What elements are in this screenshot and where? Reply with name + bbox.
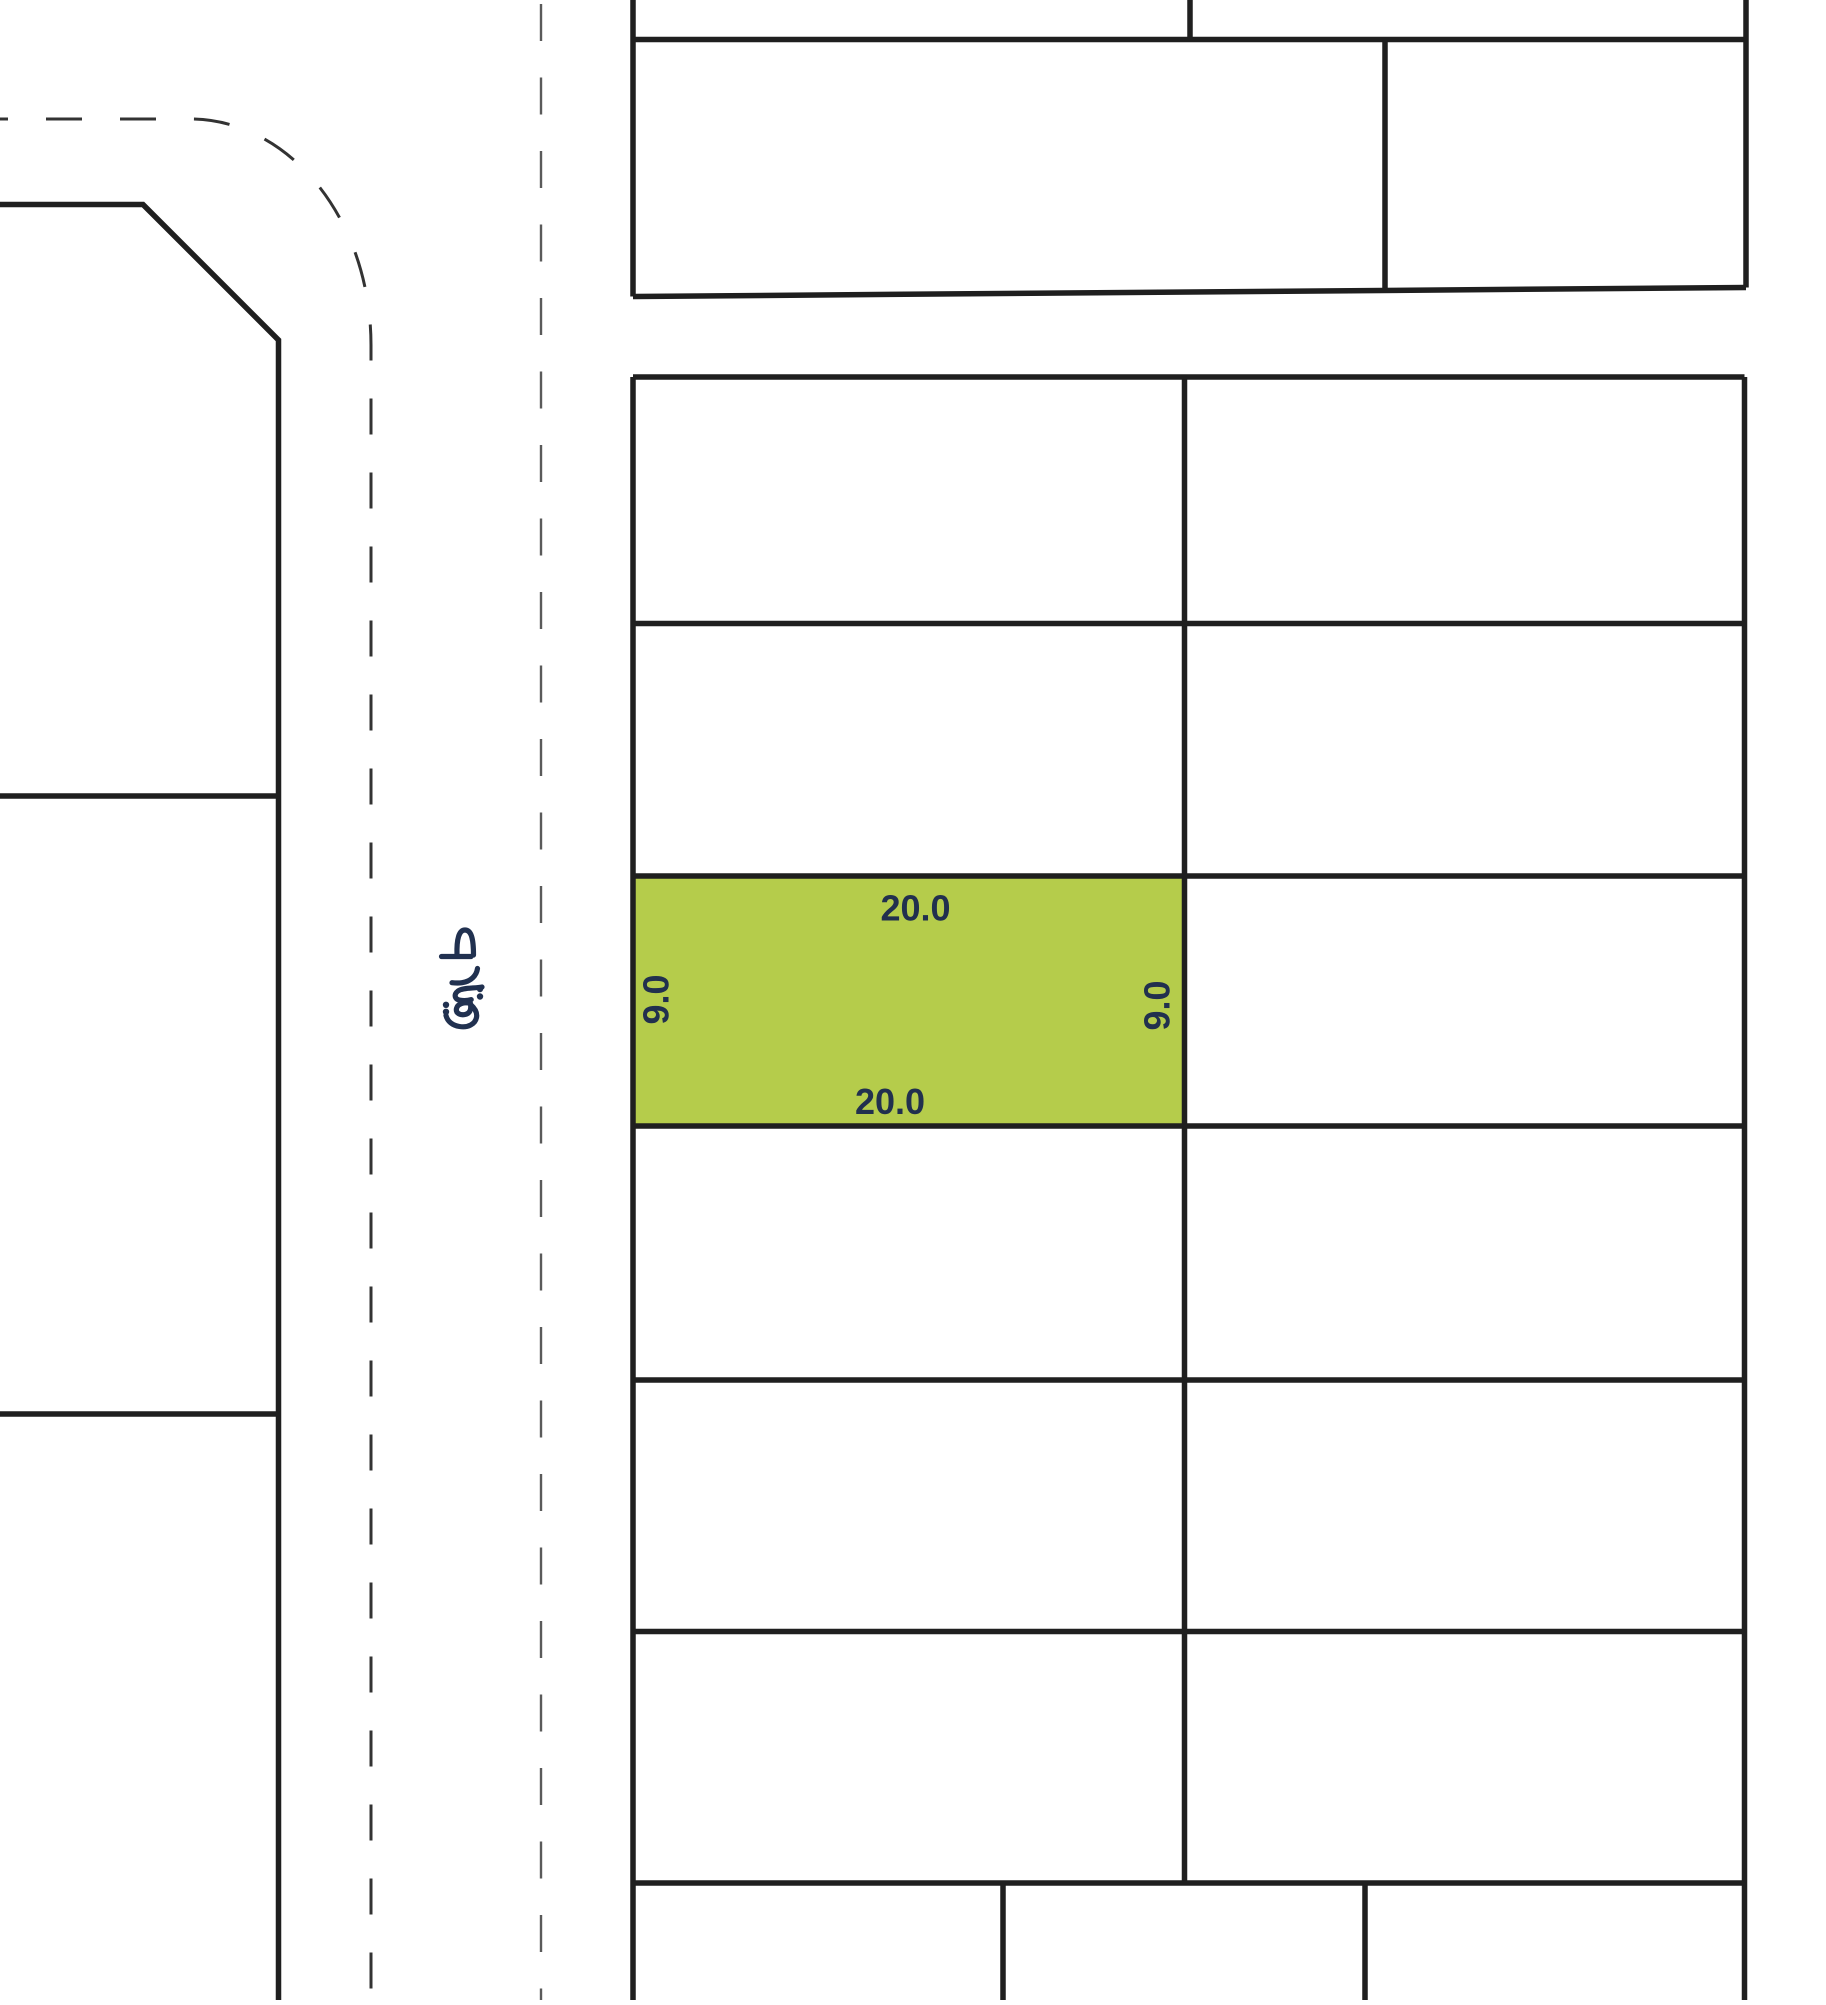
svg-text:9.0: 9.0: [1137, 980, 1178, 1030]
svg-text:9.0: 9.0: [636, 974, 677, 1024]
svg-text:20.0: 20.0: [880, 888, 950, 929]
svg-text:20.0: 20.0: [855, 1081, 925, 1122]
